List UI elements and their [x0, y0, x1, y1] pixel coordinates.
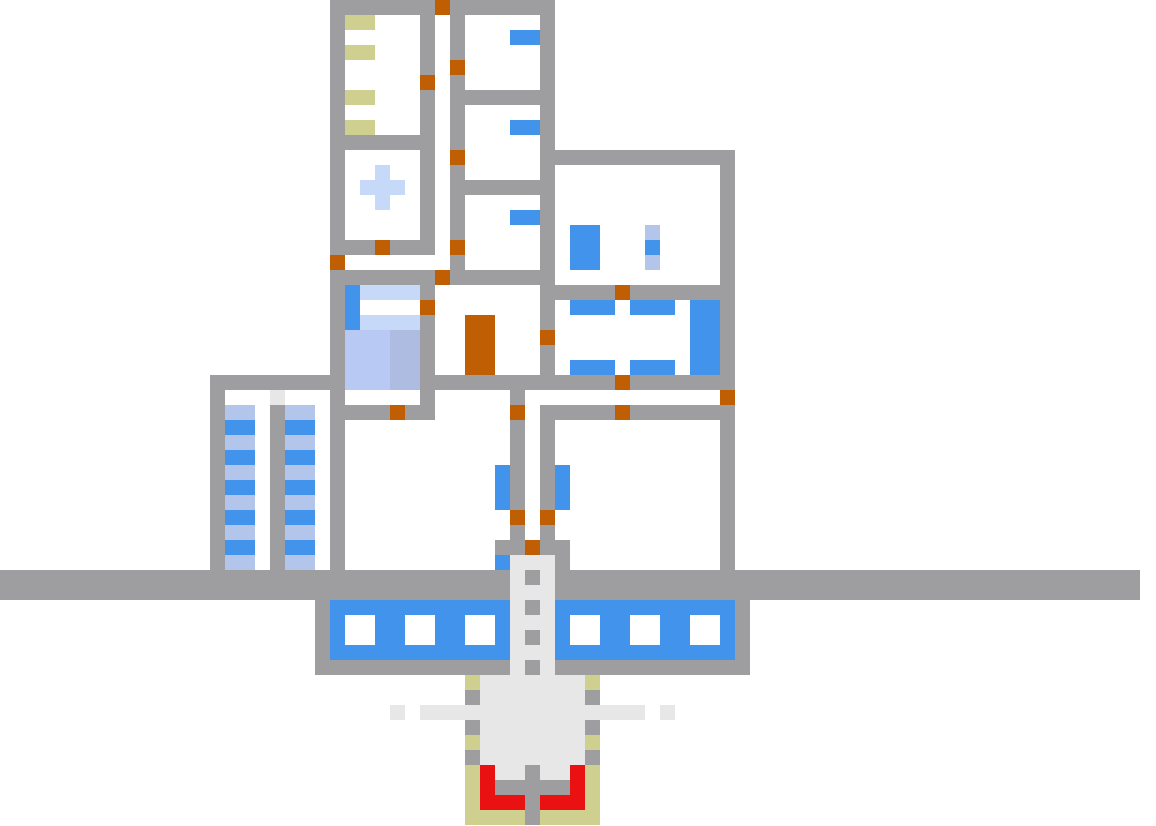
wall-segment [720, 330, 735, 345]
wall-segment [450, 15, 465, 30]
blue-furniture[interactable] [225, 450, 255, 465]
wall-segment [540, 30, 555, 45]
wall-segment [450, 135, 465, 150]
khaki-object [585, 780, 600, 795]
wall-segment [720, 300, 735, 315]
blue-furniture[interactable] [645, 240, 660, 255]
bed-blanket-light[interactable] [345, 375, 390, 390]
wall-segment [330, 0, 435, 15]
pale-blue-object [360, 315, 420, 330]
pale-gray-structure [510, 660, 525, 675]
light-blue-stripe [225, 495, 255, 510]
wall-segment [330, 420, 345, 435]
wall-segment [720, 510, 735, 525]
wall-segment [270, 495, 285, 510]
blue-furniture[interactable] [510, 210, 540, 225]
door[interactable] [465, 330, 495, 345]
blue-furniture[interactable] [630, 300, 675, 315]
red-furnace-intake [570, 765, 585, 780]
wall-segment [420, 120, 435, 135]
wall-segment [540, 75, 555, 90]
pale-gray-structure [480, 690, 585, 705]
blue-furniture[interactable] [510, 120, 540, 135]
wall-segment [525, 765, 540, 780]
wall-segment [540, 480, 555, 495]
blue-furniture[interactable] [285, 540, 315, 555]
wall-segment [330, 15, 345, 30]
wall-segment [210, 405, 225, 420]
light-blue-stripe [645, 225, 660, 240]
wall-segment [330, 45, 345, 60]
wall-segment [720, 495, 735, 510]
blue-furniture[interactable] [225, 420, 255, 435]
wall-segment [330, 390, 345, 405]
light-blue-stripe [225, 525, 255, 540]
wall-segment [330, 30, 345, 45]
wall-segment [510, 450, 525, 465]
pale-gray-structure [540, 600, 555, 615]
door[interactable] [465, 345, 495, 360]
wall-segment [330, 525, 345, 540]
wall-segment [450, 105, 465, 120]
wall-segment [420, 345, 435, 360]
bed-blanket-dark[interactable] [390, 360, 420, 375]
wall-segment [510, 390, 525, 405]
wall-segment [525, 795, 540, 810]
wall-segment [330, 330, 345, 345]
khaki-object [465, 810, 525, 825]
wall-segment [330, 195, 345, 210]
wall-segment [330, 225, 345, 240]
wall-segment [720, 315, 735, 330]
blue-furniture[interactable] [570, 225, 600, 240]
wall-segment [270, 450, 285, 465]
wall-segment [525, 660, 540, 675]
door[interactable] [375, 240, 390, 255]
wall-segment [735, 645, 750, 660]
wall-segment [540, 360, 555, 375]
door[interactable] [720, 390, 735, 405]
blue-furniture[interactable] [285, 480, 315, 495]
door[interactable] [330, 255, 345, 270]
wall-segment [270, 405, 285, 420]
wall-segment [270, 510, 285, 525]
khaki-object [465, 765, 480, 780]
blue-furniture[interactable] [555, 645, 735, 660]
wall-segment [540, 525, 555, 540]
wall-segment [720, 480, 735, 495]
door[interactable] [420, 300, 435, 315]
blue-furniture[interactable] [630, 360, 675, 375]
wall-segment [450, 75, 465, 90]
wall-segment [555, 555, 570, 570]
wall-segment [330, 345, 345, 360]
pale-gray-structure [510, 585, 555, 600]
wall-segment [270, 525, 285, 540]
wall-segment [465, 750, 480, 765]
pale-gray-structure [270, 390, 285, 405]
wall-segment [330, 540, 345, 555]
wall-segment [420, 225, 435, 240]
blue-furniture[interactable] [225, 540, 255, 555]
blue-furniture[interactable] [690, 315, 720, 330]
wall-segment [720, 555, 735, 570]
pale-gray-structure [510, 615, 555, 630]
light-blue-stripe [645, 255, 660, 270]
wall-segment [540, 240, 555, 255]
wall-segment [720, 420, 735, 435]
door[interactable] [510, 405, 525, 420]
pale-gray-structure [540, 570, 555, 585]
blue-furniture[interactable] [495, 555, 510, 570]
red-furnace-intake [540, 795, 585, 810]
wall-segment [210, 420, 225, 435]
blue-furniture[interactable] [495, 630, 510, 645]
wall-segment [450, 90, 555, 105]
wall-segment [270, 540, 285, 555]
wall-segment [540, 105, 555, 120]
wall-segment [270, 435, 285, 450]
wall-segment [720, 210, 735, 225]
wall-segment [0, 570, 510, 585]
blue-furniture[interactable] [330, 630, 345, 645]
wall-segment [735, 600, 750, 615]
wall-segment [630, 285, 735, 300]
pale-gray-structure [495, 765, 525, 780]
wall-segment [450, 30, 465, 45]
pale-gray-structure [480, 720, 585, 735]
blue-furniture[interactable] [570, 300, 615, 315]
wall-segment [585, 720, 600, 735]
wall-segment [420, 195, 435, 210]
wall-segment [735, 630, 750, 645]
wall-segment [420, 180, 435, 195]
blue-furniture[interactable] [375, 630, 405, 645]
wall-segment [315, 660, 510, 675]
blue-furniture[interactable] [285, 510, 315, 525]
wall-segment [330, 555, 345, 570]
door[interactable] [525, 540, 540, 555]
wall-segment [510, 465, 525, 480]
blue-furniture[interactable] [660, 615, 690, 630]
wall-segment [420, 285, 435, 300]
door[interactable] [465, 360, 495, 375]
wall-segment [495, 540, 525, 555]
wall-segment [330, 285, 345, 300]
wall-segment [420, 165, 435, 180]
wall-segment [540, 120, 555, 135]
wall-segment [330, 240, 375, 255]
wall-segment [420, 210, 435, 225]
wall-segment [330, 405, 390, 420]
wall-segment [540, 165, 555, 180]
wall-segment [540, 195, 555, 210]
wall-segment [540, 300, 555, 315]
wall-segment [210, 450, 225, 465]
wall-segment [330, 165, 345, 180]
khaki-object [465, 780, 480, 795]
blue-furniture[interactable] [285, 420, 315, 435]
wall-segment [450, 0, 555, 15]
wall-segment [540, 540, 570, 555]
blue-furniture[interactable] [435, 615, 465, 630]
wall-segment [405, 405, 435, 420]
bed-blanket-dark[interactable] [390, 375, 420, 390]
wall-segment [270, 480, 285, 495]
wall-segment [330, 210, 345, 225]
blue-furniture[interactable] [495, 480, 510, 495]
wall-segment [270, 420, 285, 435]
wall-segment [555, 660, 750, 675]
blue-furniture[interactable] [495, 465, 510, 480]
khaki-object [345, 90, 375, 105]
wall-segment [450, 270, 555, 285]
wall-segment [450, 195, 465, 210]
blue-furniture[interactable] [345, 315, 360, 330]
blue-furniture[interactable] [345, 285, 360, 300]
blue-furniture[interactable] [600, 630, 630, 645]
light-blue-stripe [225, 465, 255, 480]
wall-segment [510, 525, 525, 540]
blue-furniture[interactable] [555, 600, 735, 615]
wall-segment [330, 510, 345, 525]
blue-furniture[interactable] [660, 630, 690, 645]
khaki-object [585, 735, 600, 750]
wall-segment [540, 210, 555, 225]
wall-segment [330, 150, 345, 165]
khaki-object [585, 795, 600, 810]
wall-segment [210, 555, 225, 570]
red-furnace-intake [480, 765, 495, 780]
light-blue-stripe [225, 435, 255, 450]
wall-segment [540, 45, 555, 60]
pale-gray-structure [510, 630, 525, 645]
blue-furniture[interactable] [285, 450, 315, 465]
wall-segment [540, 255, 555, 270]
blue-furniture[interactable] [720, 630, 735, 645]
pale-blue-object [360, 180, 405, 195]
wall-segment [420, 315, 435, 330]
bed-blanket-light[interactable] [345, 345, 390, 360]
door[interactable] [390, 405, 405, 420]
light-blue-stripe [285, 555, 315, 570]
wall-segment [270, 465, 285, 480]
wall-segment [540, 285, 615, 300]
pale-gray-structure [510, 645, 555, 660]
light-blue-stripe [225, 405, 255, 420]
light-blue-stripe [225, 555, 255, 570]
door[interactable] [540, 510, 555, 525]
wall-segment [735, 615, 750, 630]
wall-segment [420, 360, 435, 375]
blue-furniture[interactable] [690, 300, 720, 315]
wall-segment [450, 165, 465, 180]
wall-segment [420, 90, 435, 105]
blue-furniture[interactable] [720, 615, 735, 630]
door[interactable] [450, 150, 465, 165]
pale-gray-structure [480, 675, 585, 690]
wall-segment [210, 465, 225, 480]
bed-blanket-light[interactable] [345, 330, 390, 345]
blue-furniture[interactable] [225, 480, 255, 495]
door[interactable] [420, 75, 435, 90]
door[interactable] [615, 405, 630, 420]
khaki-object [585, 675, 600, 690]
wall-segment [720, 525, 735, 540]
bed-blanket-light[interactable] [345, 360, 390, 375]
wall-segment [555, 570, 1140, 585]
blue-furniture[interactable] [375, 615, 405, 630]
wall-segment [495, 780, 570, 795]
wall-segment [420, 30, 435, 45]
wall-segment [720, 240, 735, 255]
blue-furniture[interactable] [690, 345, 720, 360]
wall-segment [540, 495, 555, 510]
wall-segment [420, 105, 435, 120]
wall-segment [465, 690, 480, 705]
door[interactable] [615, 375, 630, 390]
wall-segment [330, 315, 345, 330]
door[interactable] [540, 330, 555, 345]
door[interactable] [615, 285, 630, 300]
wall-segment [630, 375, 735, 390]
wall-segment [315, 645, 330, 660]
wall-segment [720, 450, 735, 465]
blue-furniture[interactable] [570, 240, 600, 255]
wall-segment [210, 375, 345, 390]
wall-segment [465, 720, 480, 735]
wall-segment [540, 150, 735, 165]
door[interactable] [435, 0, 450, 15]
pale-blue-object [375, 195, 390, 210]
blue-furniture[interactable] [345, 300, 360, 315]
wall-segment [210, 510, 225, 525]
door[interactable] [450, 60, 465, 75]
blue-furniture[interactable] [495, 495, 510, 510]
pale-gray-structure [510, 600, 525, 615]
bed-blanket-dark[interactable] [390, 330, 420, 345]
pale-blue-object [375, 165, 390, 180]
wall-segment [420, 60, 435, 75]
wall-segment [330, 360, 345, 375]
wall-segment [420, 15, 435, 30]
wall-segment [540, 315, 555, 330]
wall-segment [720, 180, 735, 195]
wall-segment [540, 405, 615, 420]
wall-segment [420, 390, 435, 405]
wall-segment [540, 435, 555, 450]
wall-segment [330, 270, 435, 285]
light-blue-stripe [285, 465, 315, 480]
wall-segment [450, 180, 555, 195]
pale-gray-structure [540, 660, 555, 675]
blue-furniture[interactable] [495, 615, 510, 630]
door[interactable] [510, 510, 525, 525]
wall-segment [330, 300, 345, 315]
wall-segment [540, 465, 555, 480]
wall-segment [540, 60, 555, 75]
blue-furniture[interactable] [555, 480, 570, 495]
blue-furniture[interactable] [510, 30, 540, 45]
blue-furniture[interactable] [690, 330, 720, 345]
wall-segment [210, 480, 225, 495]
wall-segment [270, 555, 285, 570]
wall-segment [420, 45, 435, 60]
door[interactable] [450, 240, 465, 255]
wall-segment [555, 585, 1140, 600]
wall-segment [525, 630, 540, 645]
pixel-map[interactable] [0, 0, 1156, 826]
wall-segment [540, 225, 555, 240]
blue-furniture[interactable] [600, 615, 630, 630]
door[interactable] [465, 315, 495, 330]
blue-furniture[interactable] [570, 360, 615, 375]
wall-segment [720, 195, 735, 210]
red-furnace-intake [570, 780, 585, 795]
wall-segment [330, 120, 345, 135]
wall-segment [540, 15, 555, 30]
wall-segment [720, 360, 735, 375]
wall-segment [510, 435, 525, 450]
blue-furniture[interactable] [555, 465, 570, 480]
wall-segment [210, 495, 225, 510]
wall-segment [585, 750, 600, 765]
wall-segment [420, 150, 435, 165]
wall-segment [540, 135, 555, 150]
wall-segment [525, 810, 540, 825]
pale-gray-structure [420, 705, 645, 720]
light-blue-stripe [285, 435, 315, 450]
wall-segment [210, 390, 225, 405]
blue-furniture[interactable] [555, 495, 570, 510]
wall-segment [330, 90, 345, 105]
blue-furniture[interactable] [555, 615, 570, 630]
wall-segment [630, 405, 735, 420]
pale-gray-structure [390, 705, 405, 720]
blue-furniture[interactable] [330, 600, 510, 615]
light-blue-stripe [285, 525, 315, 540]
wall-segment [510, 480, 525, 495]
wall-segment [720, 165, 735, 180]
wall-segment [0, 585, 510, 600]
wall-segment [330, 105, 345, 120]
wall-segment [525, 600, 540, 615]
blue-furniture[interactable] [690, 360, 720, 375]
wall-segment [330, 495, 345, 510]
blue-furniture[interactable] [330, 615, 345, 630]
blue-furniture[interactable] [435, 630, 465, 645]
wall-segment [210, 435, 225, 450]
pale-gray-structure [510, 570, 525, 585]
blue-furniture[interactable] [570, 255, 600, 270]
khaki-object [465, 735, 480, 750]
wall-segment [450, 255, 465, 270]
bed-blanket-dark[interactable] [390, 345, 420, 360]
pale-gray-structure [540, 765, 570, 780]
wall-segment [210, 525, 225, 540]
red-furnace-intake [480, 795, 525, 810]
pale-blue-object [360, 285, 420, 300]
blue-furniture[interactable] [225, 510, 255, 525]
khaki-object [585, 765, 600, 780]
pale-gray-structure [480, 750, 585, 765]
wall-segment [450, 45, 465, 60]
wall-segment [330, 60, 345, 75]
door[interactable] [435, 270, 450, 285]
blue-furniture[interactable] [555, 630, 570, 645]
khaki-object [465, 795, 480, 810]
blue-furniture[interactable] [330, 645, 510, 660]
